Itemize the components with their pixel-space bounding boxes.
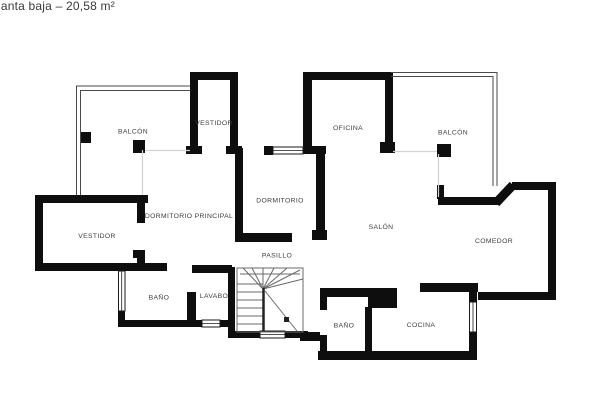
room-label-salon: SALÓN bbox=[369, 222, 394, 231]
room-label-lavabo: LAVABO bbox=[200, 293, 228, 300]
window bbox=[202, 320, 220, 327]
window bbox=[470, 302, 477, 332]
room-label-balcon-left: BALCÓN bbox=[118, 127, 148, 136]
room-label-vestidor-left: VESTIDOR bbox=[78, 233, 116, 240]
room-label-bano-right: BAÑO bbox=[334, 321, 355, 330]
room-label-vestidor-top: VESTIDOR bbox=[195, 120, 233, 127]
staircase bbox=[237, 268, 303, 332]
room-label-pasillo: PASILLO bbox=[262, 253, 292, 260]
room-label-bano-left: BAÑO bbox=[149, 293, 170, 302]
room-label-dormitorio-principal: DORMITORIO PRINCIPAL bbox=[145, 213, 233, 220]
room-label-oficina: OFICINA bbox=[333, 125, 363, 132]
floor-plan-page: lanta baja – 20,58 m² bbox=[0, 0, 600, 400]
room-label-balcon-right: BALCÓN bbox=[438, 128, 468, 137]
walls-layer bbox=[35, 72, 556, 360]
room-label-dormitorio: DORMITORIO bbox=[256, 198, 304, 205]
room-label-cocina: COCINA bbox=[407, 322, 436, 329]
room-label-comedor: COMEDOR bbox=[475, 238, 513, 245]
stair-direction-dot bbox=[284, 317, 289, 322]
floor-plan-svg: BALCÓN VESTIDOR OFICINA BALCÓN DORMITORI… bbox=[0, 0, 600, 400]
open-boundary-lines bbox=[143, 150, 439, 197]
window bbox=[273, 147, 303, 154]
windows-layer bbox=[119, 147, 477, 338]
window bbox=[119, 271, 126, 311]
